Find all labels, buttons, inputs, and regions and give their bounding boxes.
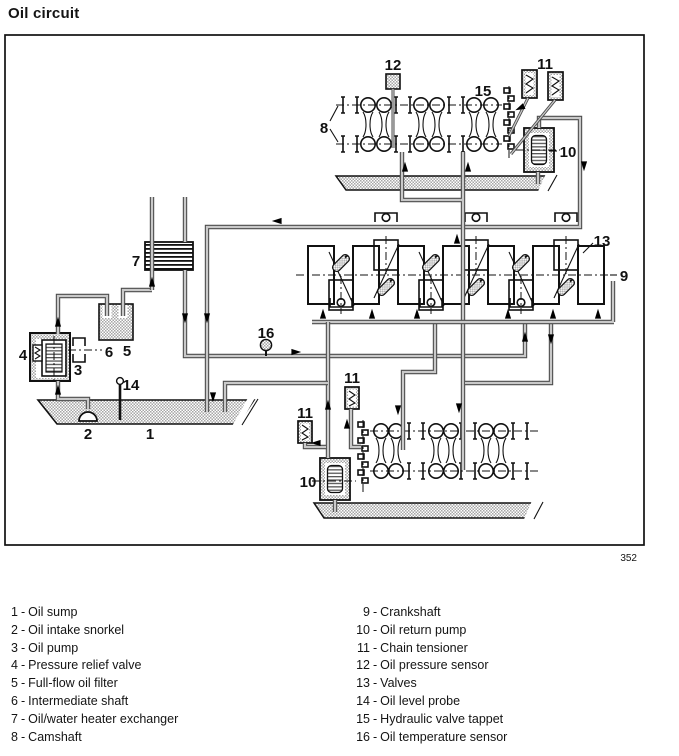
legend-item: 15-Hydraulic valve tappet (352, 711, 672, 729)
oil-circuit-diagram: 1 2 3 4 5 6 7 8 9 10 10 11 11 11 12 13 1… (0, 0, 679, 600)
legend-item: 1-Oil sump (8, 604, 338, 622)
callout-3: 3 (74, 362, 82, 379)
legend-item: 7-Oil/water heater exchanger (8, 711, 338, 729)
figure-number: 352 (620, 553, 637, 564)
callout-2: 2 (84, 426, 92, 443)
legend-item: 10-Oil return pump (352, 622, 672, 640)
legend-item: 9-Crankshaft (352, 604, 672, 622)
legend-item: 8-Camshaft (8, 729, 338, 747)
callout-11-top: 11 (537, 56, 553, 73)
callout-11-bottom-2: 11 (297, 405, 313, 422)
callout-11-bottom-1: 11 (344, 370, 360, 387)
callout-12: 12 (385, 57, 402, 74)
chain-tensioner-bottom-2 (298, 421, 312, 443)
lower-bank-sump (314, 500, 543, 521)
legend-item: 3-Oil pump (8, 640, 338, 658)
oil-pump-block (30, 333, 70, 381)
callout-7: 7 (132, 253, 140, 270)
upper-bank-sump (336, 173, 557, 193)
legend-item: 5-Full-flow oil filter (8, 675, 338, 693)
legend-item: 14-Oil level probe (352, 693, 672, 711)
legend-item: 2-Oil intake snorkel (8, 622, 338, 640)
legend-item: 16-Oil temperature sensor (352, 729, 672, 747)
pressure-relief-valve-symbol (33, 345, 42, 361)
legend-right-column: 9-Crankshaft 10-Oil return pump 11-Chain… (352, 604, 672, 746)
legend-item: 13-Valves (352, 675, 672, 693)
callout-9: 9 (620, 268, 628, 285)
callout-10-top: 10 (560, 144, 577, 161)
callout-13: 13 (594, 233, 611, 250)
legend-item: 11-Chain tensioner (352, 640, 672, 658)
callout-16: 16 (258, 325, 275, 342)
callout-6: 6 (105, 344, 113, 361)
legend-item: 4-Pressure relief valve (8, 657, 338, 675)
callout-10-bottom: 10 (300, 474, 317, 491)
chain-tensioner-top-1 (522, 70, 537, 98)
legend-item: 12-Oil pressure sensor (352, 657, 672, 675)
callout-1: 1 (146, 426, 154, 443)
callout-15: 15 (475, 83, 492, 100)
callout-5: 5 (123, 343, 131, 360)
callout-14: 14 (123, 377, 140, 394)
callout-8: 8 (320, 120, 328, 137)
chain-tensioner-bottom-1 (345, 387, 359, 409)
full-flow-oil-filter (99, 304, 133, 340)
legend-item: 6-Intermediate shaft (8, 693, 338, 711)
legend-left-column: 1-Oil sump 2-Oil intake snorkel 3-Oil pu… (8, 604, 338, 746)
callout-4: 4 (19, 347, 28, 364)
chain-tensioner-top-2 (548, 72, 563, 100)
oil-pressure-sensor-symbol (386, 74, 400, 89)
manual-page: Oil circuit (0, 0, 679, 756)
